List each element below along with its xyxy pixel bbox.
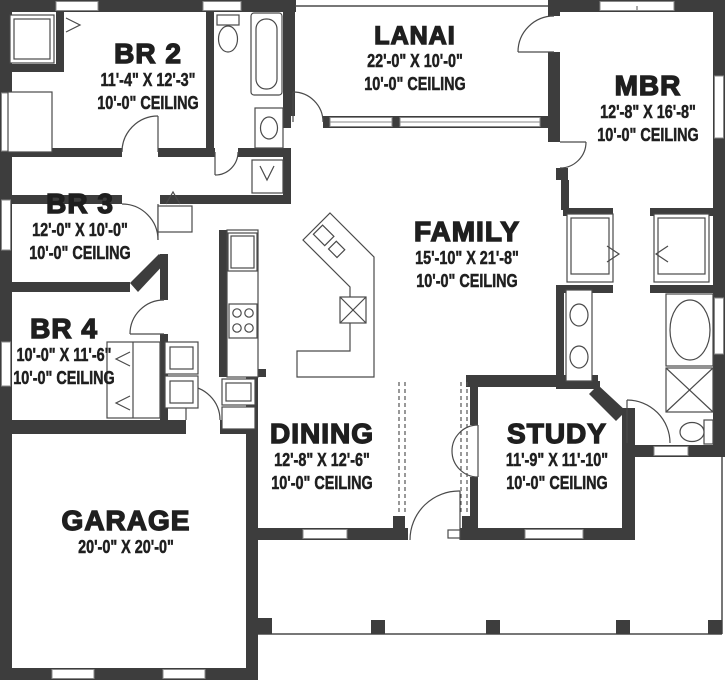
master-closets — [567, 214, 709, 282]
washer-dryer — [165, 342, 198, 408]
room-ceiling: 10'-0" CEILING — [415, 272, 519, 292]
room-name: FAMILY — [402, 218, 532, 246]
room-dimensions: 15'-10" X 21'-8" — [415, 249, 519, 269]
foyer-dashed-lines — [399, 382, 467, 514]
floor-plan: BR 2 11'-4" X 12'-3" 10'-0" CEILING LANA… — [0, 0, 725, 680]
room-ceiling: 10'-0" CEILING — [271, 474, 372, 494]
porch-columns — [258, 618, 722, 634]
room-label-br4: BR 4 10'-0" X 11'-6" 10'-0" CEILING — [1, 315, 128, 389]
kitchen-island — [297, 213, 374, 377]
room-dimensions: 10'-0" X 11'-6" — [13, 346, 114, 366]
room-name: MBR — [585, 72, 712, 100]
room-label-family: FAMILY 15'-10" X 21'-8" 10'-0" CEILING — [402, 218, 532, 292]
linen-closet — [252, 160, 283, 193]
room-ceiling: 10'-0" CEILING — [597, 126, 698, 146]
stove — [229, 304, 257, 338]
room-dimensions: 11'-4" X 12'-3" — [97, 71, 198, 91]
room-ceiling: 10'-0" CEILING — [506, 474, 608, 494]
room-name: DINING — [259, 420, 386, 448]
front-door-slab — [448, 530, 460, 538]
room-label-garage: GARAGE 20'-0" X 20'-0" — [62, 507, 191, 561]
room-name: GARAGE — [62, 507, 191, 535]
room-name: BR 4 — [1, 315, 128, 343]
toilet-tank — [704, 420, 713, 444]
br2-closet — [8, 15, 80, 152]
room-name: LANAI — [352, 24, 479, 49]
room-name: BR 3 — [17, 190, 144, 218]
room-dimensions: 12'-8" X 12'-6" — [271, 451, 372, 471]
room-ceiling: 10'-0" CEILING — [29, 244, 130, 264]
room-label-lanai: LANAI 22'-0" X 10'-0" 10'-0" CEILING — [352, 24, 479, 95]
room-label-study: STUDY 11'-9" X 11'-10" 10'-0" CEILING — [493, 420, 621, 494]
room-label-br2: BR 2 11'-4" X 12'-3" 10'-0" CEILING — [85, 40, 212, 114]
hall-bath-fixtures — [217, 13, 283, 148]
room-ceiling: 10'-0" CEILING — [97, 94, 198, 114]
toilet — [680, 423, 704, 442]
room-dimensions: 22'-0" X 10'-0" — [364, 52, 465, 72]
room-name: BR 2 — [85, 40, 212, 68]
room-name: STUDY — [493, 420, 621, 448]
room-ceiling: 10'-0" CEILING — [364, 75, 465, 95]
room-dimensions: 11'-9" X 11'-10" — [506, 451, 608, 471]
pantry-shelves — [222, 379, 255, 429]
room-dimensions: 20'-0" X 20'-0" — [74, 538, 177, 558]
room-dimensions: 12'-8" X 16'-8" — [597, 103, 698, 123]
room-label-br3: BR 3 12'-0" X 10'-0" 10'-0" CEILING — [17, 190, 144, 264]
room-label-mbr: MBR 12'-8" X 16'-8" 10'-0" CEILING — [585, 72, 712, 146]
room-label-dining: DINING 12'-8" X 12'-6" 10'-0" CEILING — [259, 420, 386, 494]
room-dimensions: 12'-0" X 10'-0" — [29, 221, 130, 241]
room-ceiling: 10'-0" CEILING — [13, 369, 114, 389]
kitchen-counter — [227, 230, 258, 377]
